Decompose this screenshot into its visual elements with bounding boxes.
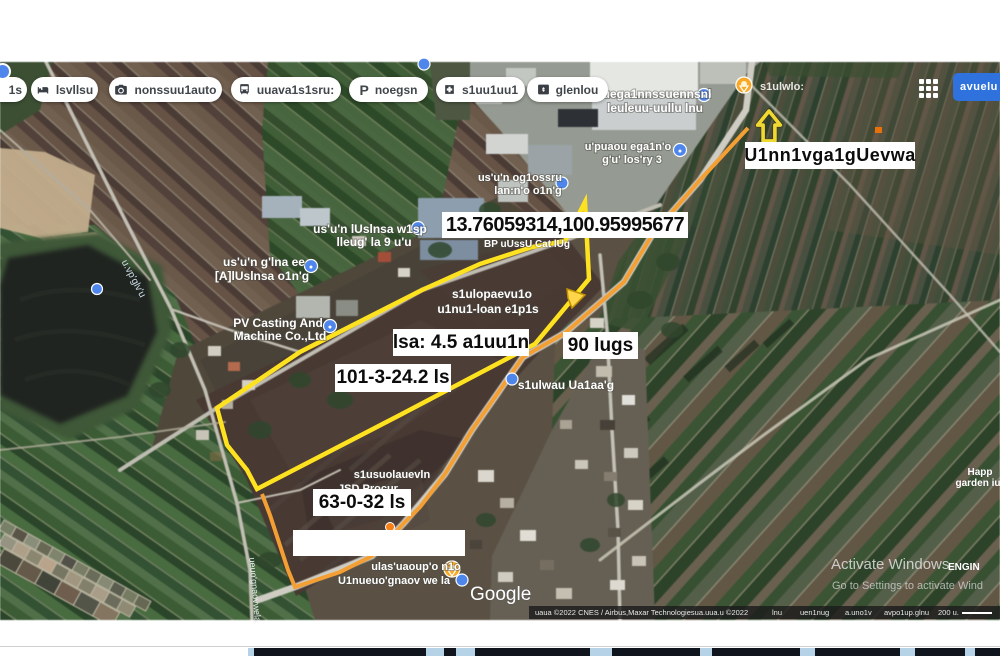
- svg-text:uen1nug: uen1nug: [800, 608, 829, 617]
- svg-text:lnu: lnu: [772, 608, 782, 617]
- svg-text:garden iu: garden iu: [955, 478, 1000, 489]
- svg-text:s1ulopaevu1o: s1ulopaevu1o: [452, 287, 532, 301]
- svg-text:Go to Settings to activate Win: Go to Settings to activate Wind: [832, 580, 983, 592]
- svg-text:PV Casting And: PV Casting And: [233, 316, 323, 330]
- svg-text:ulas'uaoup'o n1o: ulas'uaoup'o n1o: [371, 561, 461, 573]
- svg-text:ENGIN: ENGIN: [948, 562, 980, 573]
- svg-text:●: ●: [309, 264, 313, 271]
- svg-text:[A]lUslnsa o1n'g: [A]lUslnsa o1n'g: [215, 269, 309, 283]
- svg-text:U1nueuo'gnaov we la: U1nueuo'gnaov we la: [338, 575, 451, 587]
- svg-text:us'u'n g'lna ee: us'u'n g'lna ee: [223, 255, 305, 269]
- svg-text:Happ: Happ: [968, 467, 993, 478]
- svg-text:ueuo'gnaovwela: ueuo'gnaovwela: [247, 557, 263, 622]
- svg-text:uaua ©2022 CNES / Airbus,Maxar: uaua ©2022 CNES / Airbus,Maxar Technolog…: [535, 608, 748, 617]
- svg-text:●: ●: [678, 148, 682, 155]
- svg-text:s1ulwau Ua1aa'g: s1ulwau Ua1aa'g: [518, 378, 614, 392]
- svg-text:Machine Co.,Ltd: Machine Co.,Ltd: [234, 329, 327, 343]
- svg-text:200 u.: 200 u.: [938, 608, 959, 617]
- svg-text:s1usuolauevln: s1usuolauevln: [354, 469, 431, 481]
- svg-text:Google: Google: [470, 584, 531, 605]
- svg-text:us'u'n og1ossru: us'u'n og1ossru: [478, 172, 562, 184]
- svg-text:a.uno1v: a.uno1v: [845, 608, 872, 617]
- svg-text:leuleuu-uullu lnu: leuleuu-uullu lnu: [607, 101, 703, 115]
- svg-text:us'u'n lUslnsa w1sp: us'u'n lUslnsa w1sp: [313, 222, 427, 236]
- svg-text:●: ●: [328, 324, 332, 331]
- svg-text:BP uUssU Cat lUg: BP uUssU Cat lUg: [484, 239, 570, 250]
- svg-text:Activate Windows: Activate Windows: [831, 556, 949, 573]
- svg-text:s1ulwlo:: s1ulwlo:: [760, 81, 804, 93]
- svg-text:u'puaou ega1n'o: u'puaou ega1n'o: [585, 141, 672, 153]
- svg-text:lan:n'o o1n'g: lan:n'o o1n'g: [494, 185, 562, 197]
- svg-text:avpo1up.glnu: avpo1up.glnu: [884, 608, 929, 617]
- svg-text:g'u' los'ry 3: g'u' los'ry 3: [602, 154, 662, 166]
- svg-text:lleug' la 9 u'u: lleug' la 9 u'u: [336, 235, 411, 249]
- svg-text:u1nu1-loan e1p1s: u1nu1-loan e1p1s: [437, 302, 539, 316]
- svg-text:u.vp'glv'u: u.vp'glv'u: [119, 258, 148, 299]
